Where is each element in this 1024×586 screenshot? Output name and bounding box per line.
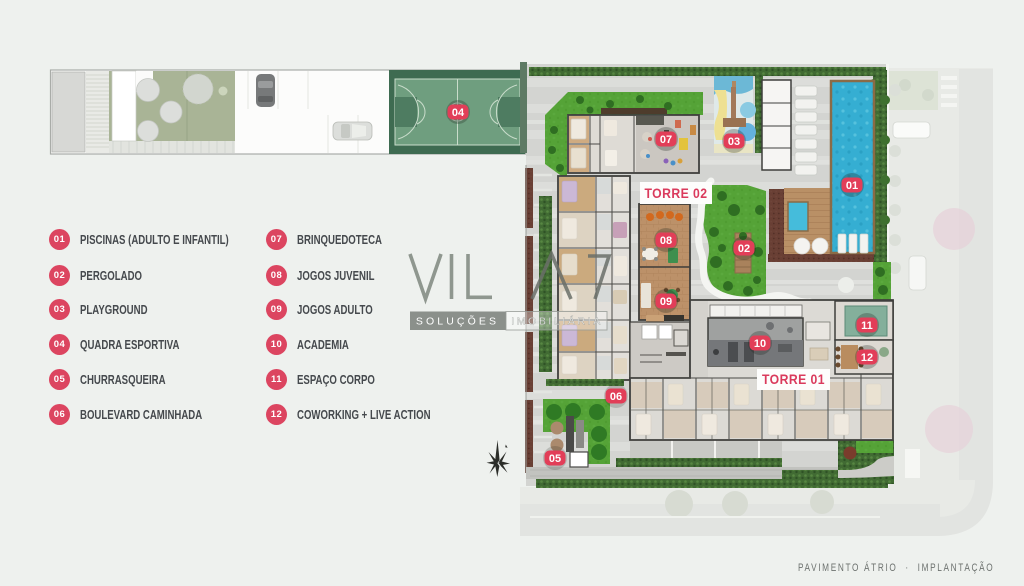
svg-text:01: 01 xyxy=(846,180,858,192)
svg-text:10: 10 xyxy=(754,338,766,350)
svg-text:12: 12 xyxy=(861,352,873,364)
svg-text:05: 05 xyxy=(549,453,561,465)
svg-text:SOLUÇÕES: SOLUÇÕES xyxy=(416,315,499,328)
svg-text:TORRE 01: TORRE 01 xyxy=(762,371,825,387)
svg-text:08: 08 xyxy=(660,235,672,247)
svg-text:09: 09 xyxy=(660,296,672,308)
svg-text:11: 11 xyxy=(861,320,873,332)
svg-text:03: 03 xyxy=(728,136,740,148)
svg-text:IMOBILIÁRIA: IMOBILIÁRIA xyxy=(511,315,603,328)
svg-text:06: 06 xyxy=(610,391,622,403)
svg-text:02: 02 xyxy=(738,243,750,255)
svg-text:TORRE 02: TORRE 02 xyxy=(645,185,708,201)
svg-text:04: 04 xyxy=(452,107,465,119)
svg-text:07: 07 xyxy=(660,134,672,146)
